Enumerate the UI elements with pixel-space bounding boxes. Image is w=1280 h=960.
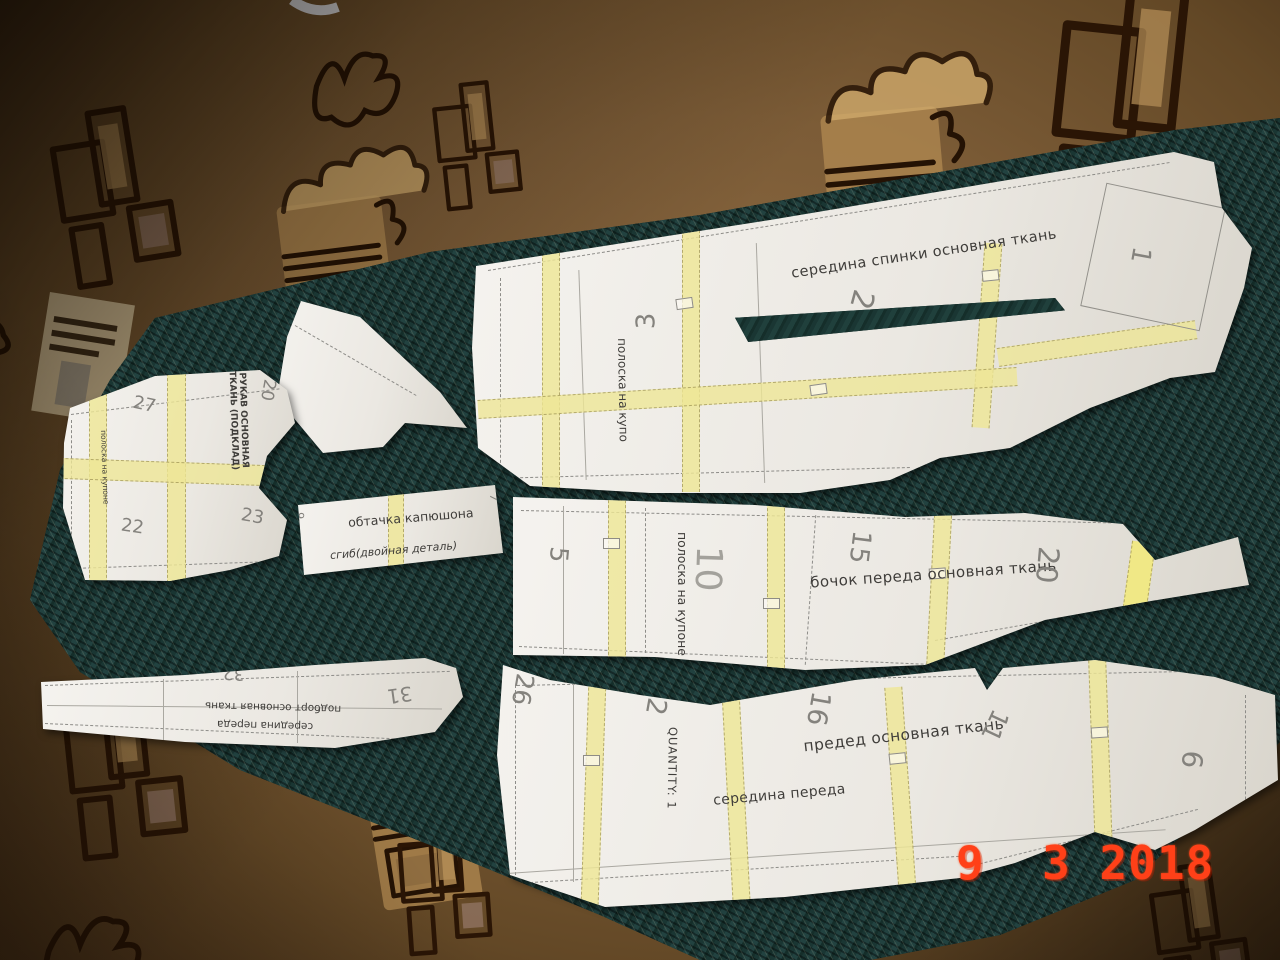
piece-number: 2 xyxy=(842,286,881,314)
piece-number: 27 xyxy=(131,392,158,417)
date-stamp: 9 3 2018 xyxy=(956,836,1214,890)
pattern-piece-sleeve: 27 20 22 23 РУКАВ ОСНОВНАЯ ТКАНЬ (ПОДКЛА… xyxy=(55,368,300,588)
piece-number: 15 xyxy=(843,529,877,566)
piece-number: 32 xyxy=(222,662,245,683)
piece-label-strip: полоска на купоне xyxy=(98,430,109,505)
piece-label-quantity: QUANTITY: 1 xyxy=(664,727,679,810)
piece-number: 31 xyxy=(385,681,414,708)
piece-number: 5 xyxy=(544,545,574,563)
piece-number: 11 xyxy=(975,705,1015,746)
piece-label-strip: полоска на купо xyxy=(614,338,630,442)
piece-label-center-front: середина переда xyxy=(217,718,314,733)
piece-label-sleeve: РУКАВ ОСНОВНАЯ ТКАНЬ (ПОДКЛАД) xyxy=(225,355,250,486)
piece-number: 20 xyxy=(256,378,279,403)
piece-number: 26 xyxy=(506,671,540,707)
piece-number: 2 xyxy=(639,695,673,717)
pattern-piece-hood-facing: обтачка капюшона сгиб(двойная деталь) 9 … xyxy=(290,483,505,578)
piece-number: 16 xyxy=(800,689,836,728)
piece-label-front-facing: подборт основная ткань xyxy=(205,699,341,715)
piece-number: 23 xyxy=(239,504,265,529)
photo-scene: середина спинки основная ткань 2 3 полос… xyxy=(0,0,1280,960)
piece-number: 6 xyxy=(1174,749,1209,771)
pattern-piece-front-facing: подборт основная ткань середина переда 3… xyxy=(35,655,465,780)
piece-number: 9 xyxy=(293,511,307,519)
piece-number: 10 xyxy=(687,545,730,592)
piece-number: 20 xyxy=(1029,545,1066,585)
piece-number: 7 xyxy=(487,493,501,501)
piece-number: 22 xyxy=(120,515,146,539)
piece-label-hood-facing: обтачка капюшона xyxy=(348,506,474,530)
piece-label-back-center: середина спинки основная ткань xyxy=(790,226,1058,282)
piece-number: 3 xyxy=(631,313,661,330)
